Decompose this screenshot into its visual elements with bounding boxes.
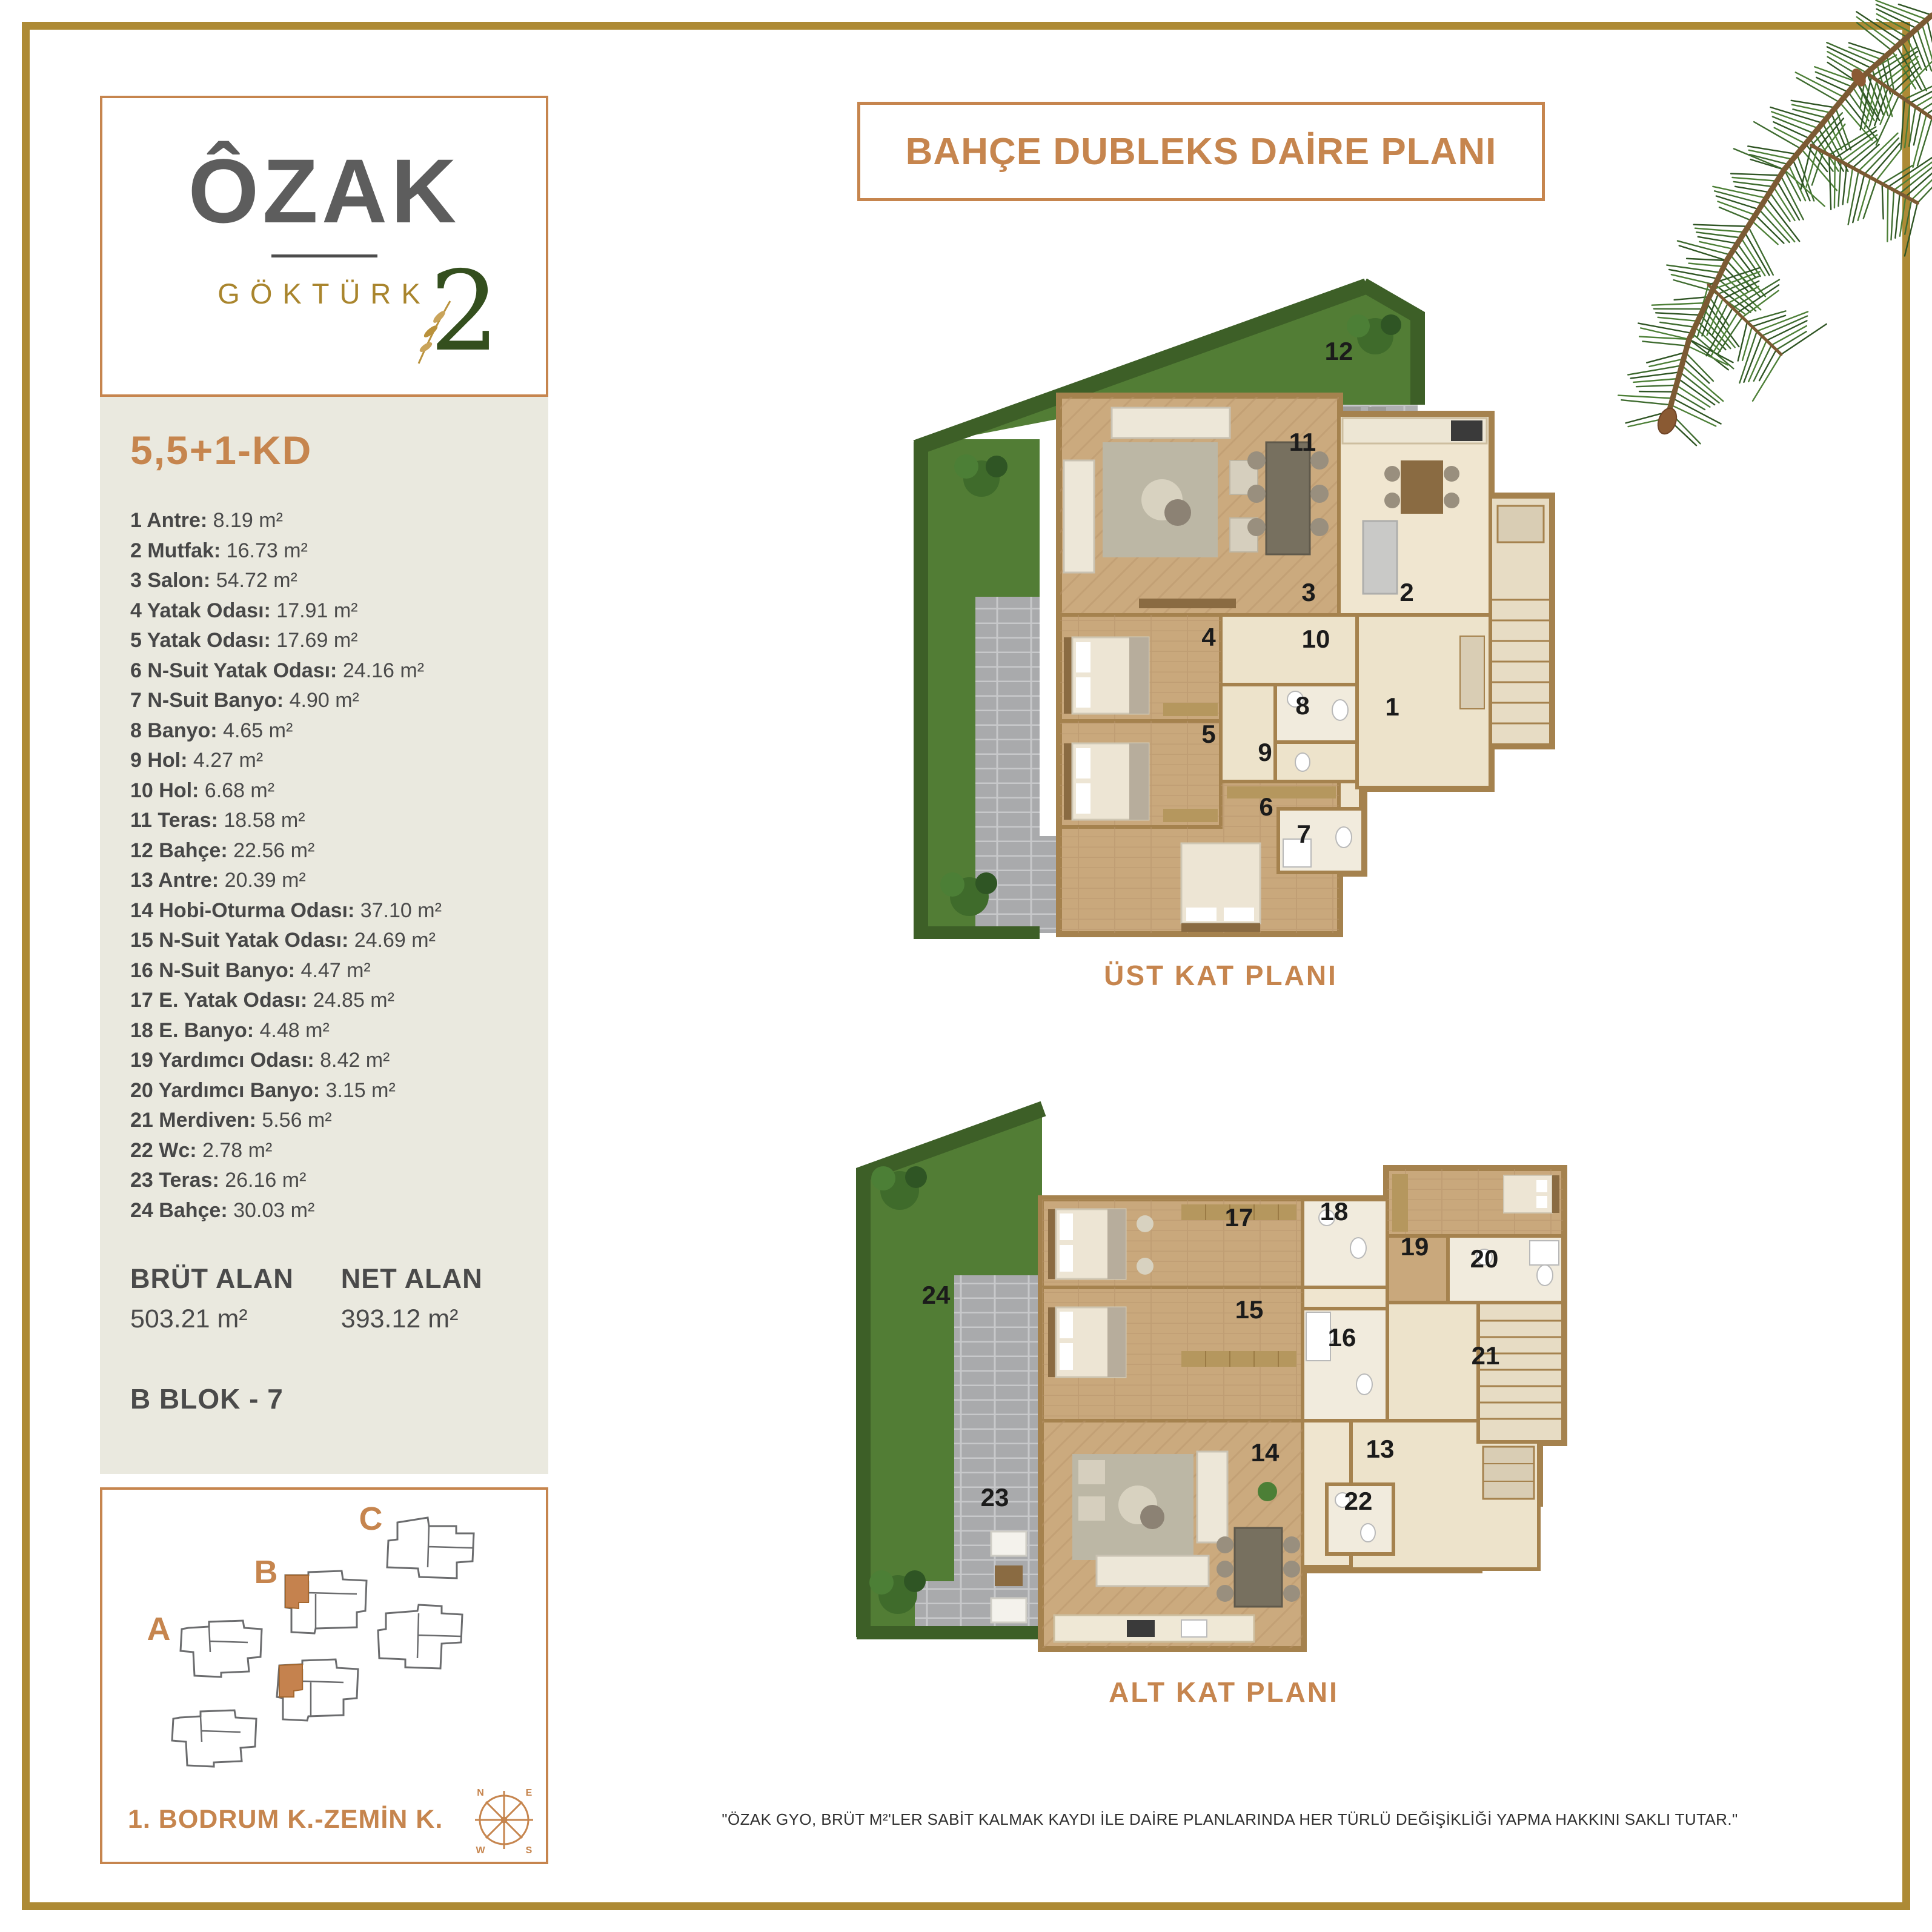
room-number-label: 21 <box>1472 1341 1500 1370</box>
room-number-label: 20 <box>1470 1244 1499 1273</box>
block-number-label: B BLOK - 7 <box>130 1383 548 1415</box>
room-number-label: 10 <box>1302 625 1330 654</box>
room-number-label: 16 <box>1328 1323 1356 1352</box>
room-list-item: 17 E. Yatak Odası: 24.85 m² <box>130 986 548 1016</box>
room-list-item: 13 Antre: 20.39 m² <box>130 866 548 896</box>
room-number-label: 23 <box>981 1483 1009 1512</box>
room-number-label: 1 <box>1385 692 1399 722</box>
page-title: BAHÇE DUBLEKS DAİRE PLANI <box>906 130 1497 173</box>
room-number-label: 24 <box>922 1281 951 1310</box>
room-list-item: 10 Hol: 6.68 m² <box>130 776 548 806</box>
room-number-label: 11 <box>1289 428 1316 457</box>
room-list: 1 Antre: 8.19 m²2 Mutfak: 16.73 m²3 Salo… <box>130 506 548 1226</box>
room-list-item: 24 Bahçe: 30.03 m² <box>130 1196 548 1226</box>
area-summary: BRÜT ALAN 503.21 m² NET ALAN 393.12 m² <box>130 1263 548 1334</box>
room-list-item: 15 N-Suit Yatak Odası: 24.69 m² <box>130 926 548 956</box>
room-list-item: 2 Mutfak: 16.73 m² <box>130 536 548 566</box>
disclaimer-text: "ÖZAK GYO, BRÜT M²'LER SABİT KALMAK KAYD… <box>703 1810 1757 1829</box>
room-list-item: 7 N-Suit Banyo: 4.90 m² <box>130 686 548 716</box>
room-number-label: 9 <box>1258 738 1272 767</box>
room-list-item: 4 Yatak Odası: 17.91 m² <box>130 596 548 626</box>
room-list-item: 22 Wc: 2.78 m² <box>130 1136 548 1166</box>
room-number-label: 4 <box>1201 623 1215 652</box>
room-number-label: 6 <box>1259 792 1273 822</box>
site-block-b-label: B <box>254 1553 278 1591</box>
room-list-item: 6 N-Suit Yatak Odası: 24.16 m² <box>130 656 548 686</box>
compass-east-label: E <box>526 1788 533 1798</box>
room-list-item: 21 Merdiven: 5.56 m² <box>130 1106 548 1136</box>
room-number-label: 17 <box>1225 1203 1253 1232</box>
room-number-label: 19 <box>1401 1232 1429 1261</box>
upper-floor-plan-drawing <box>878 261 1557 939</box>
gross-area-value: 503.21 m² <box>130 1304 294 1334</box>
unit-type-label: 5,5+1-KD <box>130 427 548 473</box>
net-area-value: 393.12 m² <box>341 1304 483 1334</box>
room-list-item: 16 N-Suit Banyo: 4.47 m² <box>130 956 548 986</box>
lower-floor-plan-drawing <box>842 1066 1569 1702</box>
net-area-label: NET ALAN <box>341 1263 483 1295</box>
room-list-item: 8 Banyo: 4.65 m² <box>130 716 548 746</box>
room-number-label: 12 <box>1325 337 1353 366</box>
site-block-c-label: C <box>359 1500 383 1538</box>
compass-north-label: N <box>477 1788 484 1798</box>
room-number-label: 7 <box>1296 820 1310 849</box>
upper-floor-plan: 123456789101112 <box>878 261 1557 939</box>
logo-divider <box>271 254 377 257</box>
net-area: NET ALAN 393.12 m² <box>341 1263 483 1334</box>
room-list-item: 1 Antre: 8.19 m² <box>130 506 548 536</box>
room-number-label: 18 <box>1320 1197 1349 1226</box>
site-floor-label: 1. BODRUM K.-ZEMİN K. <box>128 1805 443 1834</box>
brand-logo: ÔZAK <box>102 145 546 236</box>
room-number-label: 22 <box>1344 1487 1373 1516</box>
project-number: 2 <box>430 256 500 367</box>
logo-card: ÔZAK GÖKTÜRK 2 <box>100 96 548 397</box>
gross-area-label: BRÜT ALAN <box>130 1263 294 1295</box>
room-number-label: 14 <box>1251 1438 1280 1467</box>
room-number-label: 2 <box>1399 578 1413 607</box>
brochure-page: ÔZAK GÖKTÜRK 2 5,5+1-KD 1 Antre: 8.19 m²… <box>0 0 1932 1932</box>
room-number-label: 3 <box>1301 578 1315 607</box>
room-number-label: 13 <box>1366 1435 1395 1464</box>
project-name: GÖKTÜRK <box>217 277 430 310</box>
room-list-item: 12 Bahçe: 22.56 m² <box>130 836 548 866</box>
room-list-item: 18 E. Banyo: 4.48 m² <box>130 1016 548 1046</box>
room-list-item: 23 Teras: 26.16 m² <box>130 1166 548 1196</box>
room-number-label: 15 <box>1235 1295 1264 1324</box>
room-list-item: 11 Teras: 18.58 m² <box>130 806 548 836</box>
room-number-label: 8 <box>1295 691 1309 720</box>
unit-info-panel: 5,5+1-KD 1 Antre: 8.19 m²2 Mutfak: 16.73… <box>100 397 548 1474</box>
lower-plan-label: ALT KAT PLANI <box>1042 1676 1406 1708</box>
compass-south-label: S <box>526 1845 533 1856</box>
compass-icon <box>475 1791 533 1849</box>
lower-floor-plan: 131415161718192021222324 <box>842 1066 1569 1702</box>
room-number-label: 5 <box>1201 720 1215 749</box>
room-list-item: 5 Yatak Odası: 17.69 m² <box>130 626 548 656</box>
room-list-item: 14 Hobi-Oturma Odası: 37.10 m² <box>130 896 548 926</box>
page-title-box: BAHÇE DUBLEKS DAİRE PLANI <box>857 102 1545 201</box>
compass-west-label: W <box>476 1845 485 1856</box>
gross-area: BRÜT ALAN 503.21 m² <box>130 1263 294 1334</box>
room-list-item: 9 Hol: 4.27 m² <box>130 746 548 776</box>
upper-plan-label: ÜST KAT PLANI <box>1039 959 1403 992</box>
room-list-item: 3 Salon: 54.72 m² <box>130 566 548 596</box>
site-block-a-label: A <box>147 1610 171 1648</box>
project-name-row: GÖKTÜRK 2 <box>102 277 546 374</box>
room-list-item: 20 Yardımcı Banyo: 3.15 m² <box>130 1076 548 1106</box>
room-list-item: 19 Yardımcı Odası: 8.42 m² <box>130 1046 548 1076</box>
site-plan-card: N E W S A B C 1. BODRUM K.-ZEMİN K. <box>100 1487 548 1864</box>
